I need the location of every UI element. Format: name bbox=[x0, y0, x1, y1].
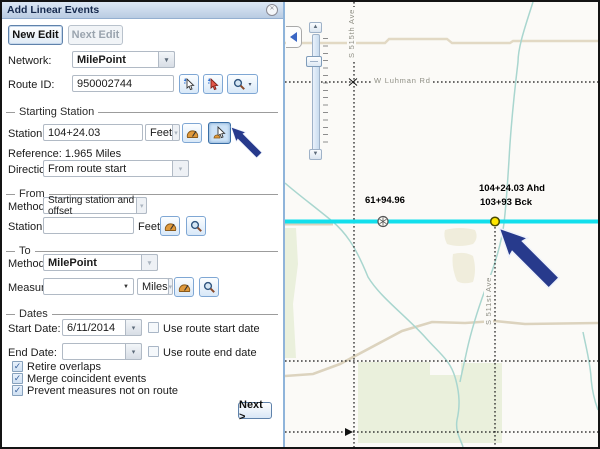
start-date-value: 6/11/2014 bbox=[67, 322, 115, 334]
map-graphics bbox=[285, 2, 598, 447]
chevron-down-icon: ▾ bbox=[141, 254, 158, 271]
station-marker[interactable] bbox=[378, 217, 388, 227]
station-value: 104+24.03 bbox=[48, 127, 100, 139]
gauge-icon bbox=[164, 220, 177, 233]
chevron-down-icon[interactable]: ▼ bbox=[123, 284, 129, 290]
chevron-down-icon[interactable]: ▾ bbox=[158, 51, 175, 68]
zoom-out-button[interactable]: ▼ bbox=[309, 149, 322, 160]
tan-road-top bbox=[285, 39, 598, 43]
chevron-down-icon: ▾ bbox=[172, 160, 189, 177]
chevron-down-icon: ▾ bbox=[248, 81, 251, 88]
from-method-combobox[interactable]: Starting station and offset ▾ bbox=[43, 197, 147, 214]
station-label-2-ahead: 104+24.03 Ahd bbox=[479, 183, 545, 194]
chevron-down-icon: ▾ bbox=[168, 278, 174, 295]
direction-value: From route start bbox=[48, 163, 126, 175]
end-date-input[interactable]: ▾ bbox=[62, 343, 142, 360]
station-units-value: Feet bbox=[150, 127, 172, 139]
prevent-measures-label: Prevent measures not on route bbox=[27, 385, 178, 397]
zoom-in-button[interactable]: ▲ bbox=[309, 22, 322, 33]
chevron-down-icon[interactable]: ▾ bbox=[125, 319, 142, 336]
annotation-arrow-map bbox=[497, 226, 563, 292]
route-id-label: Route ID: bbox=[8, 79, 54, 91]
cursor-clear-icon bbox=[207, 78, 220, 91]
use-route-end-date-label: Use route end date bbox=[163, 347, 257, 359]
to-method-combobox[interactable]: MilePoint ▾ bbox=[43, 254, 158, 271]
next-button[interactable]: Next > bbox=[238, 402, 272, 419]
zoom-slider-thumb[interactable] bbox=[306, 56, 322, 67]
junction-arrow bbox=[345, 428, 353, 436]
map-view[interactable]: W Luhman Rd S 515th Ave S 511st Ave 61+9… bbox=[285, 2, 598, 447]
station-label-1: 61+94.96 bbox=[365, 195, 405, 206]
from-method-label: Method: bbox=[8, 201, 48, 213]
clear-route-selection-button[interactable] bbox=[203, 74, 223, 94]
gauge-icon bbox=[178, 281, 191, 294]
panel-header[interactable]: Add Linear Events ✕ bbox=[2, 2, 283, 19]
collapse-left-icon bbox=[290, 32, 297, 42]
dates-legend: Dates bbox=[6, 308, 278, 320]
retire-overlaps-checkbox[interactable]: ✓ bbox=[12, 361, 23, 372]
selected-station-point[interactable] bbox=[491, 217, 500, 226]
station-label-2-back: 103+93 Bck bbox=[480, 197, 532, 208]
zoom-slider-ticks bbox=[323, 38, 328, 149]
chevron-down-icon: ▾ bbox=[172, 124, 180, 141]
add-linear-events-panel: Add Linear Events ✕ New Edit Next Edit N… bbox=[2, 2, 285, 447]
from-units-label: Feet bbox=[138, 221, 160, 233]
route-id-input[interactable]: 950002744 bbox=[72, 75, 174, 92]
land-parcel-center bbox=[358, 362, 502, 443]
road-label-511st: S 511st Ave bbox=[484, 275, 493, 327]
gauge-icon bbox=[186, 127, 199, 140]
search-icon bbox=[190, 220, 203, 233]
direction-combobox[interactable]: From route start ▾ bbox=[43, 160, 189, 177]
station-units-combobox[interactable]: Feet ▾ bbox=[145, 124, 176, 141]
measure-units-combobox[interactable]: Miles ▾ bbox=[137, 278, 169, 295]
merge-coincident-events-label: Merge coincident events bbox=[27, 373, 146, 385]
close-icon[interactable]: ✕ bbox=[266, 4, 278, 16]
prevent-measures-checkbox[interactable]: ✓ bbox=[12, 385, 23, 396]
from-measure-button[interactable] bbox=[160, 216, 180, 236]
new-edit-button[interactable]: New Edit bbox=[8, 25, 63, 45]
land-parcel-left bbox=[285, 228, 298, 358]
stream-far-east bbox=[583, 332, 598, 410]
station-measure-button[interactable] bbox=[182, 123, 202, 143]
panel-title: Add Linear Events bbox=[7, 4, 266, 16]
land-blob-2 bbox=[453, 253, 476, 283]
retire-overlaps-label: Retire overlaps bbox=[27, 361, 101, 373]
app-window: Add Linear Events ✕ New Edit Next Edit N… bbox=[0, 0, 600, 449]
start-date-label: Start Date: bbox=[8, 323, 61, 335]
measure-search-button[interactable] bbox=[199, 277, 219, 297]
start-date-input[interactable]: 6/11/2014 ▾ bbox=[62, 319, 142, 336]
from-method-value: Starting station and offset bbox=[48, 195, 136, 217]
cursor-gauge-icon bbox=[213, 126, 227, 140]
chevron-down-icon[interactable]: ▾ bbox=[125, 343, 142, 360]
panel-collapse-tab[interactable] bbox=[286, 26, 302, 48]
pick-station-on-map-button[interactable] bbox=[208, 122, 231, 144]
starting-station-legend: Starting Station bbox=[6, 106, 278, 118]
measure-units-value: Miles bbox=[142, 281, 168, 293]
road-label-luhman: W Luhman Rd bbox=[372, 76, 433, 85]
measure-combobox[interactable]: ▼ bbox=[43, 278, 134, 295]
use-route-end-date-checkbox[interactable] bbox=[148, 346, 159, 357]
annotation-arrow-panel bbox=[230, 126, 264, 160]
to-method-label: Method: bbox=[8, 258, 48, 270]
select-route-on-map-button[interactable] bbox=[179, 74, 199, 94]
reference-text: Reference: 1.965 Miles bbox=[8, 148, 121, 160]
land-blob-1 bbox=[444, 228, 476, 246]
station-input[interactable]: 104+24.03 bbox=[43, 124, 143, 141]
use-route-start-date-label: Use route start date bbox=[163, 323, 260, 335]
route-search-menu-button[interactable]: ▾ bbox=[227, 74, 258, 94]
station-label: Station: bbox=[8, 128, 45, 140]
use-route-start-date-checkbox[interactable] bbox=[148, 322, 159, 333]
chevron-down-icon: ▾ bbox=[136, 197, 147, 214]
network-combobox[interactable]: MilePoint ▾ bbox=[72, 51, 175, 68]
from-station-input[interactable] bbox=[43, 217, 134, 234]
search-icon bbox=[233, 78, 246, 91]
road-label-515th: S 515th Ave bbox=[347, 7, 356, 60]
end-date-label: End Date: bbox=[8, 347, 57, 359]
tan-road-bottom bbox=[285, 321, 598, 376]
merge-coincident-events-checkbox[interactable]: ✓ bbox=[12, 373, 23, 384]
from-station-label: Station: bbox=[8, 221, 45, 233]
zoom-slider-track[interactable] bbox=[312, 34, 320, 151]
from-search-button[interactable] bbox=[186, 216, 206, 236]
cursor-select-icon bbox=[183, 78, 196, 91]
network-value: MilePoint bbox=[77, 54, 126, 66]
route-id-value: 950002744 bbox=[77, 78, 132, 90]
search-icon bbox=[203, 281, 216, 294]
to-method-value: MilePoint bbox=[48, 257, 97, 269]
network-label: Network: bbox=[8, 55, 51, 67]
next-edit-button: Next Edit bbox=[68, 25, 123, 45]
measure-measure-button[interactable] bbox=[174, 277, 194, 297]
